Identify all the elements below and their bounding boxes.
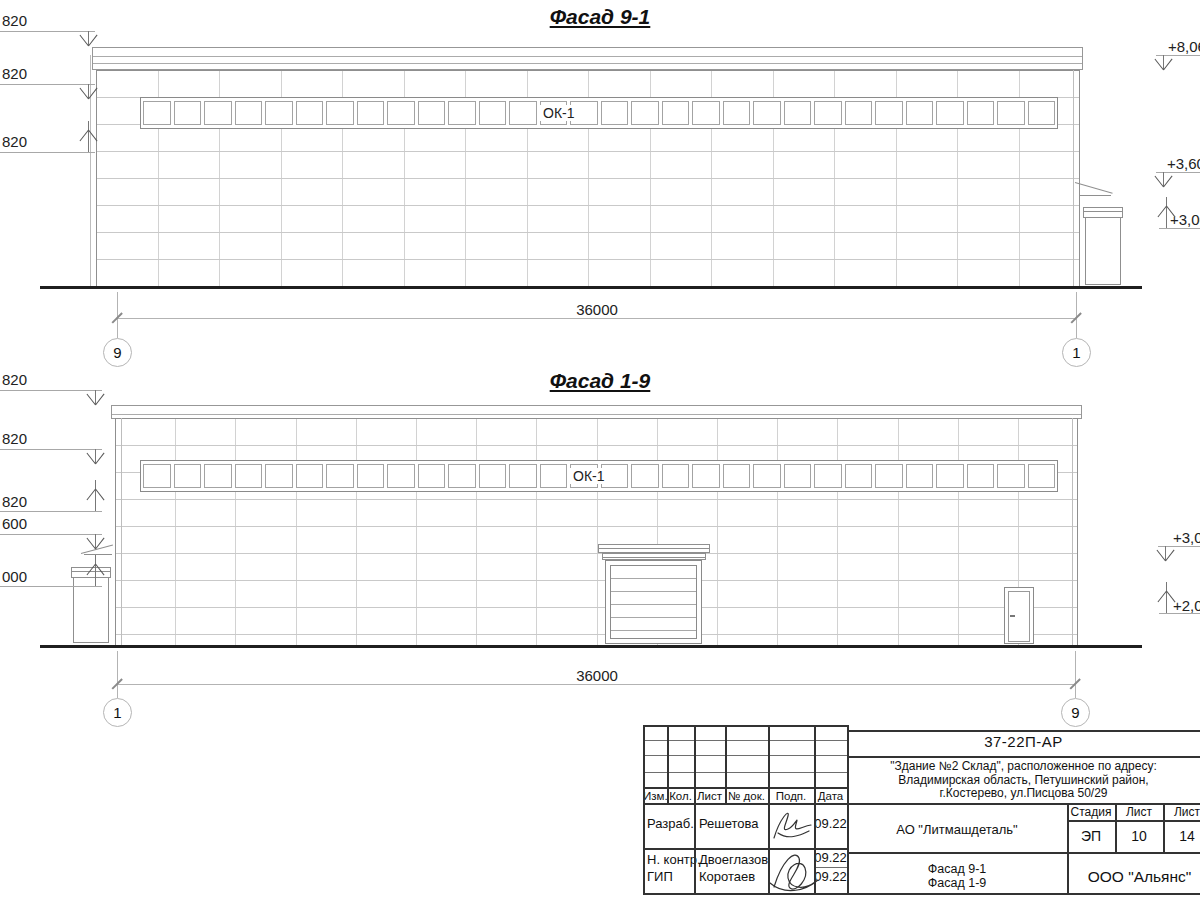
annex-cap — [1083, 207, 1123, 218]
axis-bubble-1: 1 — [103, 698, 132, 727]
elevation-arrow-icon — [87, 563, 103, 577]
window-pane — [204, 101, 232, 125]
tb-role-gip: ГИП — [647, 869, 673, 884]
window-pane — [479, 101, 507, 125]
elevation-mark-value: +8,06 — [1168, 38, 1200, 55]
window-pane — [265, 464, 293, 488]
tb-total-sheets-label: Лист — [1163, 805, 1200, 819]
window-pane — [479, 464, 507, 488]
window-pane — [143, 101, 171, 125]
window-pane — [235, 101, 263, 125]
window-band-label: ОК-1 — [569, 468, 609, 484]
tb-address-line-3: г.Костерево, ул.Писцова 50/29 — [940, 787, 1108, 801]
title-block-line — [1163, 803, 1165, 852]
window-pane — [845, 101, 873, 125]
gate-canopy — [598, 544, 710, 553]
title-block-line — [847, 730, 1200, 732]
axis-extension — [1075, 651, 1076, 698]
parapet-top — [92, 47, 1083, 70]
elevation-mark-value: +3,0 — [1173, 529, 1200, 546]
tb-address-line-2: Владимирская область, Петушинский район, — [898, 774, 1148, 788]
elevation-arrow-icon — [80, 33, 96, 47]
tb-col-ndok: № док. — [725, 790, 768, 802]
tb-sheet-value: 10 — [1115, 828, 1163, 844]
door-handle — [1010, 615, 1015, 617]
dimension-value: 36000 — [497, 667, 697, 684]
tb-date-developer: 09.22 — [814, 816, 847, 831]
window-pane — [204, 464, 232, 488]
window-pane — [845, 464, 873, 488]
elevation-mark-value: 820 — [2, 493, 27, 510]
title-block-line — [725, 725, 727, 803]
elevation-mark-value: 820 — [2, 430, 27, 447]
axis-extension — [117, 651, 118, 698]
window-pane — [387, 464, 415, 488]
elevation-mark-value: 820 — [2, 12, 27, 29]
signature-scribble — [768, 806, 814, 846]
window-pane — [265, 101, 293, 125]
window-pane — [1028, 101, 1056, 125]
canopy-eave — [84, 554, 112, 555]
elevation-mark-shelf — [0, 31, 95, 32]
elevation-mark-value: +3,60 — [1167, 155, 1200, 172]
corner-trim — [1073, 70, 1074, 288]
title-block-line — [1115, 803, 1117, 852]
window-pane — [174, 464, 202, 488]
tb-client: АО "Литмашдеталь" — [847, 822, 1067, 837]
tb-doc-code: 37-22П-АР — [847, 733, 1200, 750]
tb-name-gip: Коротаев — [699, 869, 755, 884]
annex-body — [1085, 218, 1121, 285]
title-block-line — [643, 893, 1200, 895]
window-pane — [326, 101, 354, 125]
tb-sheet-title-2: Фасад 1-9 — [928, 876, 987, 890]
elevation-mark-value: 600 — [2, 515, 27, 532]
title-block-line — [643, 755, 847, 756]
elevation-mark-shelf — [0, 390, 102, 391]
window-pane — [784, 464, 812, 488]
tb-total-sheets-value: 14 — [1163, 828, 1200, 844]
window-pane — [509, 101, 537, 125]
window-pane — [997, 101, 1025, 125]
entrance-door — [1004, 587, 1034, 644]
tb-role-developer: Разраб. — [647, 816, 694, 831]
window-pane — [875, 464, 903, 488]
window-pane — [174, 101, 202, 125]
elevation-mark-value: +3,00 — [1170, 211, 1200, 228]
ground-line — [40, 645, 1142, 648]
tb-col-kol: Кол. — [667, 790, 694, 802]
window-pane — [662, 101, 690, 125]
title-block-line — [1067, 803, 1069, 893]
elevation-mark-value: 820 — [2, 65, 27, 82]
tb-address-line-1: "Здание №2 Склад", расположенное по адре… — [890, 760, 1157, 774]
elevation-arrow-icon — [1158, 205, 1174, 219]
window-band-label: ОК-1 — [539, 105, 579, 121]
ground-line — [40, 286, 1142, 289]
tb-stage-label: Стадия — [1067, 805, 1115, 819]
gate-canopy-lower — [602, 553, 706, 560]
window-pane — [235, 464, 263, 488]
elevation-arrow-icon — [87, 392, 103, 406]
window-pane — [936, 464, 964, 488]
axis-bubble-9: 9 — [1061, 698, 1090, 727]
window-pane — [1028, 464, 1056, 488]
facade-top-title: Фасад 9-1 — [0, 5, 1200, 29]
title-block-line — [643, 740, 847, 741]
elevation-mark-value: +2,00 — [1173, 597, 1200, 614]
facade-bottom-wall — [115, 418, 1078, 646]
elevation-mark-value: 820 — [2, 371, 27, 388]
tb-company: ООО "Альянс" — [1067, 868, 1200, 886]
window-pane — [906, 101, 934, 125]
window-pane — [631, 464, 659, 488]
window-pane — [662, 464, 690, 488]
title-block-line — [847, 852, 1200, 854]
window-pane — [723, 101, 751, 125]
window-pane — [967, 464, 995, 488]
dimension-line — [117, 684, 1075, 685]
tb-col-izm: Изм. — [643, 790, 667, 802]
window-pane — [509, 464, 537, 488]
window-pane — [692, 464, 720, 488]
elevation-arrow-icon — [1155, 57, 1171, 71]
title-block-line — [643, 787, 847, 789]
dimension-value: 36000 — [497, 301, 697, 318]
title-block-line — [694, 725, 696, 893]
window-pane — [357, 101, 385, 125]
window-pane — [296, 101, 324, 125]
window-pane — [997, 464, 1025, 488]
elevation-mark-shelf — [0, 534, 102, 535]
elevation-arrow-icon — [80, 86, 96, 100]
window-pane — [784, 101, 812, 125]
elevation-mark-shelf — [0, 152, 95, 153]
window-pane — [936, 101, 964, 125]
sectional-gate — [605, 560, 702, 644]
dimension-line — [117, 318, 1077, 319]
window-pane — [753, 101, 781, 125]
title-block-line — [847, 756, 1200, 758]
tb-name-developer: Решетова — [699, 816, 759, 831]
title-block-line — [643, 725, 645, 893]
drawing-sheet: Фасад 9-1 ОК-1 36000 9 1 Фасад 1-9 ОК-1 — [0, 0, 1200, 900]
window-pane — [540, 464, 568, 488]
window-band-ok1: ОК-1 — [140, 460, 1058, 492]
window-pane — [814, 101, 842, 125]
canopy-eave — [1079, 195, 1111, 196]
window-pane — [357, 464, 385, 488]
window-pane — [601, 101, 629, 125]
window-pane — [875, 101, 903, 125]
tb-sheet-title-1: Фасад 9-1 — [928, 862, 987, 876]
window-pane — [418, 101, 446, 125]
elevation-mark-shelf — [0, 449, 102, 450]
tb-role-ncontrol: Н. контр. — [647, 852, 701, 867]
elevation-mark-shelf — [1159, 613, 1200, 614]
axis-bubble-1: 1 — [1062, 338, 1091, 367]
title-block-line — [1067, 820, 1200, 822]
tb-col-podp: Подп. — [768, 790, 814, 802]
elevation-mark-shelf — [0, 511, 102, 512]
window-band-ok1: ОК-1 — [140, 97, 1058, 129]
tb-col-data: Дата — [814, 790, 847, 802]
window-pane — [814, 464, 842, 488]
window-pane — [448, 101, 476, 125]
elevation-mark-value: 000 — [2, 568, 27, 585]
window-pane — [418, 464, 446, 488]
corner-trim — [121, 418, 122, 646]
title-block-line — [643, 725, 847, 727]
signature-scribble — [764, 845, 822, 895]
elevation-arrow-icon — [1158, 590, 1174, 604]
elevation-mark-shelf — [0, 84, 95, 85]
window-pane — [967, 101, 995, 125]
window-pane — [143, 464, 171, 488]
window-pane — [753, 464, 781, 488]
title-block-line — [667, 725, 669, 803]
elevation-arrow-icon — [80, 129, 96, 143]
elevation-arrow-icon — [87, 488, 103, 502]
window-pane — [387, 101, 415, 125]
window-pane — [906, 464, 934, 488]
axis-bubble-9: 9 — [103, 338, 132, 367]
corner-trim — [1072, 418, 1073, 646]
canopy-slope — [1075, 182, 1113, 194]
tb-project-address: "Здание №2 Склад", расположенное по адре… — [852, 760, 1195, 801]
elevation-arrow-icon — [1157, 548, 1173, 562]
elevation-arrow-icon — [1155, 174, 1171, 188]
window-pane — [448, 464, 476, 488]
tb-col-list: Лист — [694, 790, 725, 802]
window-pane — [296, 464, 324, 488]
elevation-mark-shelf — [1159, 228, 1200, 229]
elevation-arrow-icon — [87, 536, 103, 550]
elevation-mark-value: 820 — [2, 133, 27, 150]
elevation-arrow-icon — [87, 451, 103, 465]
window-pane — [692, 101, 720, 125]
tb-sheet-titles: Фасад 9-1 Фасад 1-9 — [847, 862, 1067, 890]
parapet-bottom — [111, 405, 1082, 419]
tb-stage-value: ЭП — [1067, 828, 1115, 844]
elevation-mark-shelf — [0, 586, 102, 587]
window-pane — [631, 101, 659, 125]
title-block-line — [643, 772, 847, 773]
tb-sheet-label: Лист — [1115, 805, 1163, 819]
annex-body — [73, 578, 109, 643]
tb-name-ncontrol: Двоеглазов — [699, 852, 768, 867]
facade-bottom-title: Фасад 1-9 — [0, 369, 1200, 393]
window-pane — [326, 464, 354, 488]
title-block-line — [847, 725, 849, 893]
window-pane — [723, 464, 751, 488]
